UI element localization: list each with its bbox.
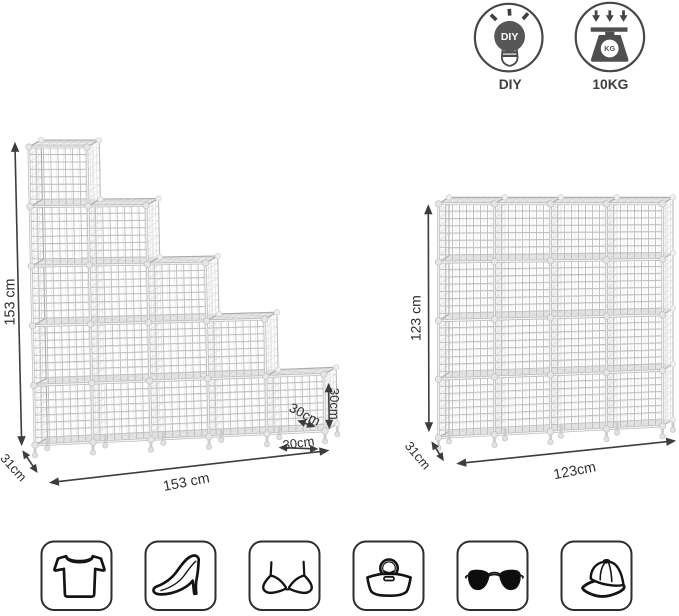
svg-text:DIY: DIY — [501, 31, 519, 43]
svg-text:DIY: DIY — [499, 77, 522, 92]
svg-text:123 cm: 123 cm — [408, 295, 424, 341]
svg-text:10KG: 10KG — [592, 77, 628, 92]
svg-text:30cm: 30cm — [327, 388, 342, 420]
svg-text:153 cm: 153 cm — [2, 279, 18, 326]
svg-text:KG: KG — [604, 44, 615, 53]
